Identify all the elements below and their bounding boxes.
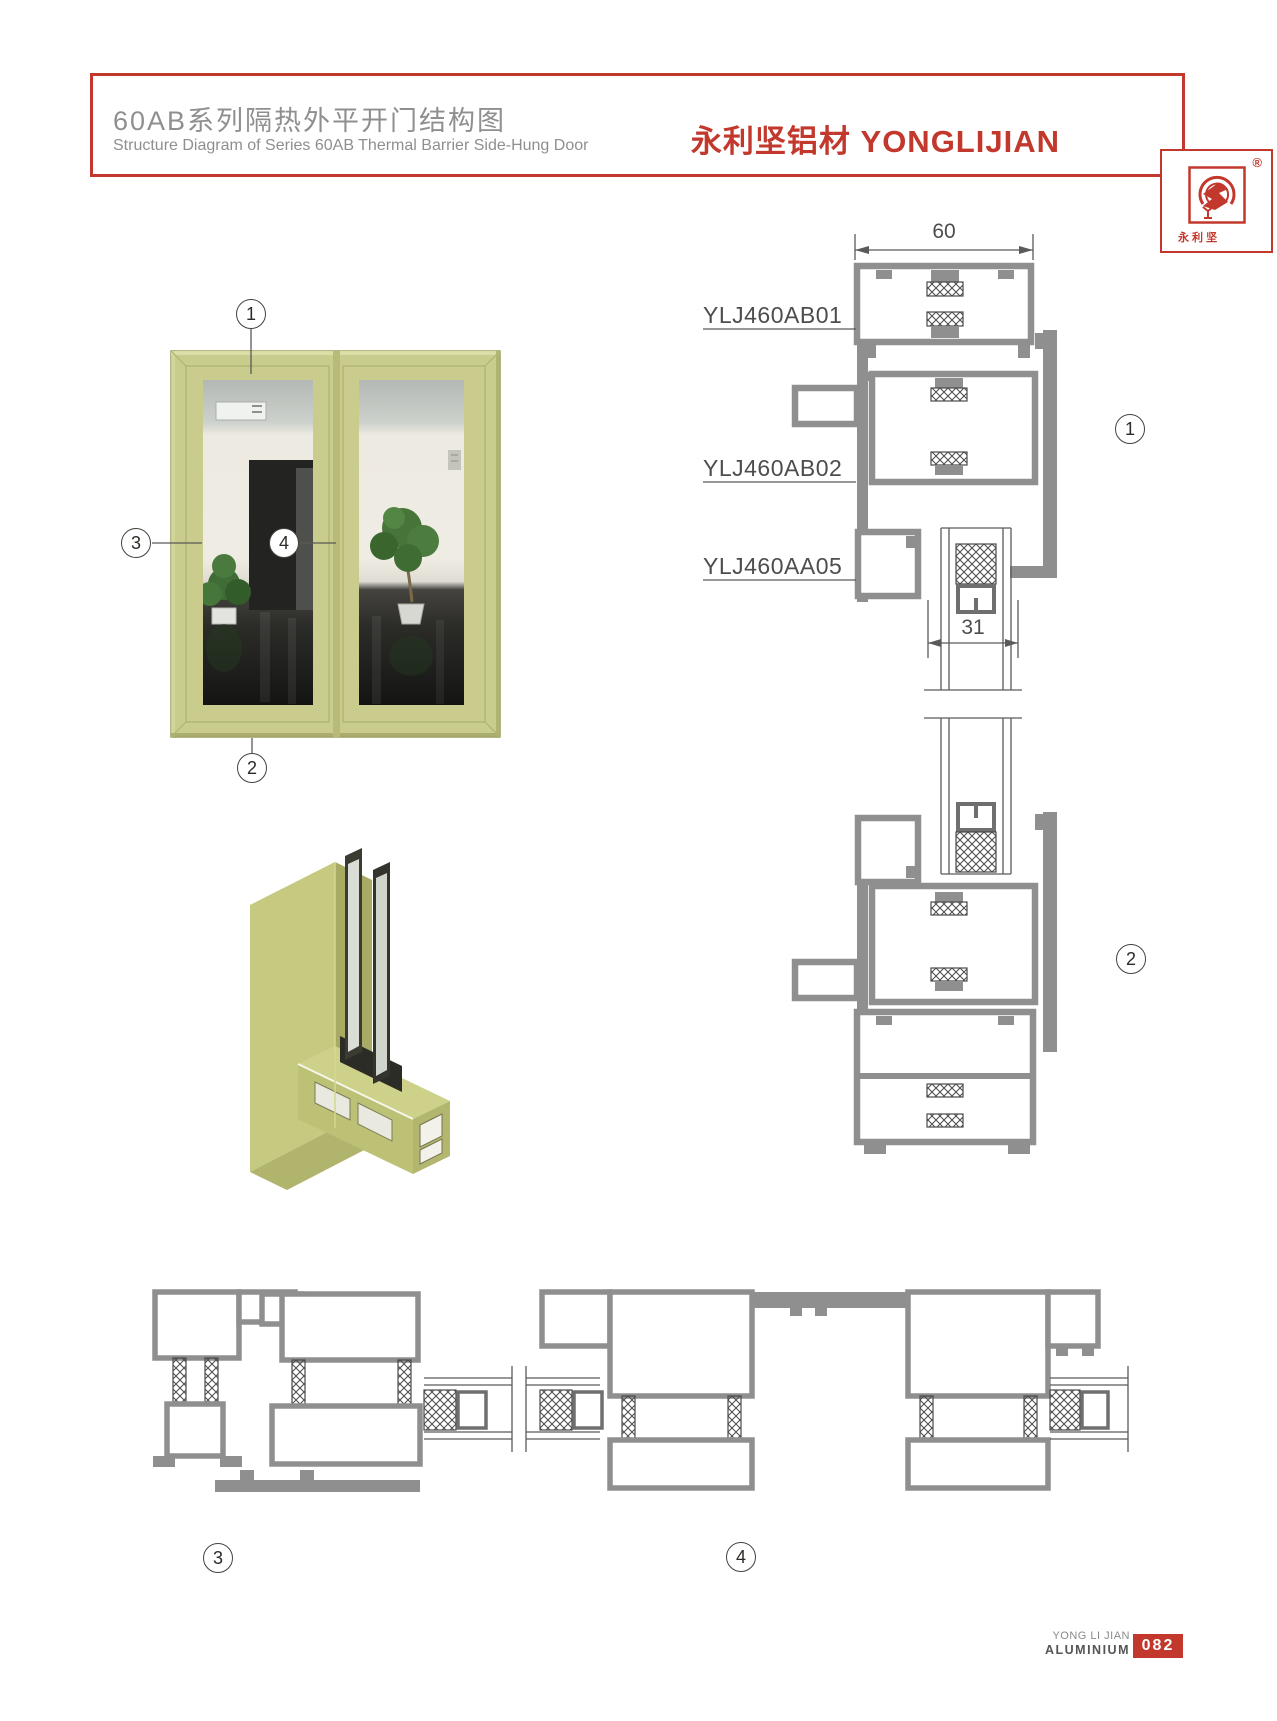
dimension-frame-width: 60 <box>904 220 984 244</box>
page-subtitle: Structure Diagram of Series 60AB Thermal… <box>113 137 588 155</box>
door-glass-right <box>359 380 464 705</box>
brand-logo: ® 永 利 坚 <box>1160 149 1273 253</box>
page-title: 60AB系列隔热外平开门结构图 <box>113 99 506 138</box>
section-callout-4: 4 <box>726 1542 756 1572</box>
door-callout-3: 3 <box>121 528 151 558</box>
door-callout-2: 2 <box>237 753 267 783</box>
section-callout-1: 1 <box>1115 414 1145 444</box>
footer-brand-line1: YONG LI JIAN <box>990 1630 1130 1643</box>
page-number-badge: 082 <box>1133 1634 1183 1658</box>
technical-drawing-canvas <box>0 0 1277 1721</box>
profile-3d-render <box>250 848 450 1190</box>
section-sill-detail <box>795 718 1057 1154</box>
profile-label-1: YLJ460AB01 <box>703 302 842 329</box>
section-callout-3: 3 <box>203 1543 233 1573</box>
section-plan-detail <box>153 1292 1128 1492</box>
footer-brand: YONG LI JIAN ALUMINIUM <box>990 1630 1130 1657</box>
yonglijian-emblem-icon <box>1188 166 1246 224</box>
section-callout-2: 2 <box>1116 944 1146 974</box>
logo-company-characters: 永 利 坚 <box>1162 229 1271 245</box>
catalog-page: { "header": { "title_zh": "60AB系列隔热外平开门结… <box>0 0 1277 1721</box>
profile-label-3: YLJ460AA05 <box>703 553 842 580</box>
brand-name: 永利坚铝材 YONGLIJIAN <box>600 116 1060 161</box>
footer-brand-line2: ALUMINIUM <box>990 1643 1130 1657</box>
door-photo <box>152 329 500 753</box>
registered-trademark-icon: ® <box>1252 155 1262 170</box>
door-callout-4: 4 <box>269 528 299 558</box>
dimension-glass-width: 31 <box>933 616 1013 640</box>
profile-label-2: YLJ460AB02 <box>703 455 842 482</box>
door-callout-1: 1 <box>236 299 266 329</box>
